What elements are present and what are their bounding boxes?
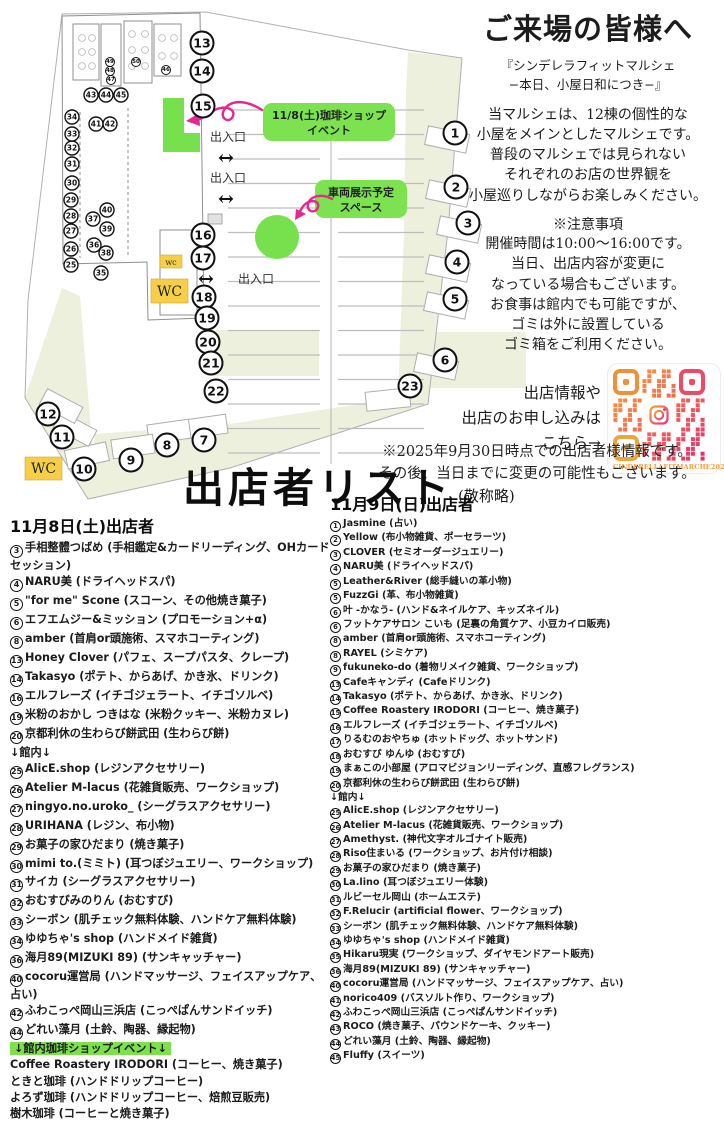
vendor-label: NARU美 (ドライヘッドスパ) — [25, 575, 176, 588]
map-marker-number: 37 — [88, 215, 98, 224]
vendor-label: 米粉のおかし つきはな (米粉クッキー、米粉カヌレ) — [25, 708, 289, 721]
map-marker-number: 10 — [75, 462, 93, 477]
event-subtitle: 『シンデレラフィットマルシェ −本日、小屋日和につき−』 — [456, 57, 720, 95]
vendor-number-badge: 25 — [330, 808, 341, 819]
vendor-number-badge: 26 — [10, 785, 23, 798]
vendor-number-badge: 14 — [10, 674, 23, 687]
map-marker-number: 26 — [66, 245, 76, 254]
vendor-label: どれい藻月 (土鈴、陶器、縁起物) — [343, 1036, 491, 1047]
vendor-label: amber (首肩or頭施術、スマホコーティング) — [343, 633, 546, 644]
vendor-entry: ↓館内↓ — [330, 792, 722, 805]
vendor-label: fukuneko-do (着物リメイク雑貨、ワークショップ) — [343, 662, 578, 673]
vendor-number-badge: 33 — [330, 923, 341, 934]
map-marker-number: 16 — [194, 228, 212, 243]
vendor-entry: 15Coffee Roastery IRODORI (コーヒー、焼き菓子) — [330, 705, 722, 719]
map-marker-number: 13 — [193, 36, 210, 51]
vendor-label: URIHANA (レジン、布小物) — [25, 819, 175, 832]
vendor-number-badge: 35 — [330, 952, 341, 963]
vendor-number-badge: 44 — [330, 1039, 341, 1050]
vendor-number-badge: 17 — [330, 737, 341, 748]
vendor-number-badge: 4 — [330, 564, 341, 575]
sunday-vendor-list: 1Jasmine (占い)2Yellow (布小物雑貨、ポーセラーツ)3CLOV… — [330, 518, 722, 1064]
vendor-number-badge: 42 — [10, 1008, 23, 1021]
vendor-number-badge: 40 — [330, 981, 341, 992]
map-marker-number: 14 — [193, 64, 211, 79]
map-marker-number: 41 — [91, 120, 101, 129]
vendor-label: norico409 (バスソルト作り、ワークショップ) — [343, 993, 554, 1004]
vendor-number-badge: 15 — [330, 708, 341, 719]
double-arrow-icon: ↔ — [218, 147, 234, 169]
trash-box — [208, 214, 222, 224]
map-marker-number: 46 — [162, 67, 170, 73]
vendor-label: Atelier M-lacus (花雑貨販売、ワークショップ) — [25, 781, 279, 794]
vendor-entry: 30La.lino (耳つぼジュエリー体験) — [330, 877, 722, 891]
vendor-number-badge: 28 — [10, 823, 23, 836]
map-marker-number: 36 — [89, 241, 99, 250]
vendor-label: ningyo.no.uroko_ (シーグラスアクセサリー) — [25, 800, 270, 813]
map-marker-number: 47 — [107, 77, 115, 83]
vendor-label: Riso住まいる (ワークショップ、お片付け相談) — [343, 848, 553, 859]
vendor-entry: 28Riso住まいる (ワークショップ、お片付け相談) — [330, 848, 722, 862]
vendor-label: cocoru運営局 (ハンドマッサージ、フェイスアップケア、占い) — [343, 978, 623, 989]
vendor-number-badge: 32 — [10, 898, 23, 911]
vendor-label: ROCO (焼き菓子、パウンドケーキ、クッキー) — [343, 1021, 551, 1032]
vendor-entry: 34ゆゆちゃ's shop (ハンドメイド雑貨) — [10, 931, 330, 949]
vendor-label: Coffee Roastery IRODORI (コーヒー、焼き菓子) — [343, 705, 579, 716]
vendor-entry: 8RAYEL (シミケア) — [330, 648, 722, 662]
vendor-number-badge: 29 — [330, 866, 341, 877]
vendor-label: ↓館内珈琲ショップイベント↓ — [10, 1042, 171, 1055]
vendor-label: Coffee Roastery IRODORI (コーヒー、焼き菓子) — [10, 1058, 283, 1071]
vendor-entry: 40cocoru運営局 (ハンドマッサージ、フェイスアップケア、占い) — [330, 978, 722, 992]
vendor-label: お菓子の家ひだまり (焼き菓子) — [25, 838, 184, 851]
vendor-label: Honey Clover (パフェ、スープパスタ、クレープ) — [25, 651, 289, 664]
wc-label: WC — [31, 461, 56, 477]
vendor-entry: 13Cafeキャンディ (Cafeドリンク) — [330, 677, 722, 691]
vendor-entry: 42ふわこっぺ岡山三浜店 (こっぺぱんサンドイッチ) — [10, 1003, 330, 1021]
map-marker-number: 12 — [39, 407, 56, 422]
vendor-number-badge: 36 — [10, 955, 23, 968]
vendor-number-badge: 18 — [330, 752, 341, 763]
entrance-label: 出入口 — [238, 272, 274, 286]
vendor-entry: 30mimi to.(ミミト) (耳つぼジュエリー、ワークショップ) — [10, 856, 330, 874]
vendor-entry: よろず珈琲 (ハンドドリップコーヒー、焙煎豆販売) — [10, 1090, 330, 1105]
vendor-number-badge: 8 — [330, 636, 341, 647]
vendor-label: RAYEL (シミケア) — [343, 648, 428, 659]
vendor-label: "for me" Scone (スコーン、その他焼き菓子) — [25, 594, 267, 607]
wc-small-label: wc — [165, 258, 177, 267]
map-marker-number: 48 — [106, 68, 114, 74]
vendor-label: りるむのおやちゅ (ホットドッグ、ホットサンド) — [343, 734, 558, 745]
vendor-number-badge: 6 — [10, 617, 23, 630]
vendor-label: Takasyo (ポテト、からあげ、かき氷、ドリンク) — [25, 670, 279, 683]
vendor-entry: 35Hikaru現実 (ワークショップ、ダイヤモンドアート販売) — [330, 949, 722, 963]
vehicle-annotation-line2: スペース — [340, 201, 383, 214]
vendor-number-badge: 31 — [10, 879, 23, 892]
vendor-number-badge: 31 — [330, 895, 341, 906]
entrance-label: 出入口 — [210, 171, 246, 185]
vendor-label: AlicE.shop (レジンアクセサリー) — [343, 805, 499, 816]
vendor-entry: 33シーボン (肌チェック無料体験、ハンドケア無料体験) — [330, 921, 722, 935]
vendor-label: エルフレーズ (イチゴジェラート、イチゴソルベ) — [25, 689, 273, 702]
map-marker-number: 50 — [132, 59, 140, 65]
vendor-label: ↓館内↓ — [330, 792, 366, 803]
vendor-number-badge: 32 — [330, 909, 341, 920]
map-marker-number: 6 — [441, 353, 450, 368]
vendor-entry: 6叶 -かなう- (ハンド&ネイルケア、キッズネイル) — [330, 605, 722, 619]
vendor-number-badge: 16 — [10, 693, 23, 706]
vendor-label: F.Relucir (artificial flower、ワークショップ) — [343, 906, 563, 917]
vendor-label: Takasyo (ポテト、からあげ、かき氷、ドリンク) — [343, 691, 563, 702]
vendor-label: エフエムジー&ミッション (プロモーション+α) — [25, 613, 267, 626]
vendor-entry: ときと珈琲 (ハンドドリップコーヒー) — [10, 1074, 330, 1089]
vendor-label: 海月89(MIZUKI 89) (サンキャッチャー) — [343, 964, 530, 975]
wc-label: WC — [157, 284, 182, 300]
vendor-entry: 14Takasyo (ポテト、からあげ、かき氷、ドリンク) — [330, 691, 722, 705]
vehicle-annotation-line1: 車両展示予定 — [328, 185, 394, 199]
visitor-info-panel: ご来場の皆様へ 『シンデレラフィットマルシェ −本日、小屋日和につき−』 当マル… — [456, 6, 720, 473]
vendor-label: フットケアサロン こいも (足裏の角質ケア、小豆カイロ販売) — [343, 619, 610, 630]
double-arrow-icon: ↔ — [218, 188, 234, 210]
page-title: ご来場の皆様へ — [456, 6, 720, 48]
map-marker-number: 40 — [102, 206, 112, 215]
map-marker-number: 27 — [66, 227, 76, 236]
vendor-number-badge: 20 — [10, 731, 23, 744]
sunday-header: 11月9日(日)出店者 — [330, 491, 722, 515]
vendor-entry: 40cocoru運営局 (ハンドマッサージ、フェイスアップケア、占い) — [10, 969, 330, 1002]
vendor-entry: 25AlicE.shop (レジンアクセサリー) — [330, 805, 722, 819]
vendor-entry: 32F.Relucir (artificial flower、ワークショップ) — [330, 906, 722, 920]
vendor-entry: 20京都利休の生わらび餅武田 (生わらび餅) — [10, 726, 330, 744]
vendor-label: サイカ (シーグラスアクセサリー) — [25, 875, 196, 888]
map-marker-number: 17 — [194, 251, 211, 266]
intro-paragraph: 当マルシェは、12棟の個性的な 小屋をメインとしたマルシェです。 普段のマルシェ… — [456, 105, 720, 206]
vendor-number-badge: 28 — [330, 851, 341, 862]
vendor-label: CLOVER (セミオーダージュエリー) — [343, 547, 503, 558]
vendor-label: ゆゆちゃ's shop (ハンドメイド雑貨) — [343, 935, 510, 946]
vendor-label: ゆゆちゃ's shop (ハンドメイド雑貨) — [25, 932, 218, 945]
saturday-vendor-list: 3手相整體つばめ (手相鑑定&カードリーディング、OHカードセッション)4NAR… — [10, 540, 330, 1121]
vendor-number-badge: 13 — [330, 680, 341, 691]
vendor-entry: 19米粉のおかし つきはな (米粉クッキー、米粉カヌレ) — [10, 707, 330, 725]
vendor-entry: 45Fluffy (スイーツ) — [330, 1050, 722, 1064]
vendor-number-badge: 1 — [330, 521, 341, 532]
vendor-label: 京都利休の生わらび餅武田 (生わらび餅) — [343, 778, 520, 789]
vendor-number-badge: 27 — [330, 837, 341, 848]
vendor-entry: 4NARU美 (ドライヘッドスパ) — [10, 574, 330, 592]
vendor-number-badge: 8 — [10, 636, 23, 649]
vendor-entry: 36海月89(MIZUKI 89) (サンキャッチャー) — [330, 964, 722, 978]
vendor-label: mimi to.(ミミト) (耳つぼジュエリー、ワークショップ) — [25, 857, 313, 870]
vendor-entry: 8amber (首肩or頭施術、スマホコーティング) — [330, 633, 722, 647]
vendor-number-badge: 6 — [330, 607, 341, 618]
vendor-number-badge: 20 — [330, 781, 341, 792]
map-marker-number: 20 — [199, 335, 217, 350]
vendor-number-badge: 33 — [10, 917, 23, 930]
vendor-entry: 3手相整體つばめ (手相鑑定&カードリーディング、OHカードセッション) — [10, 540, 330, 573]
vendor-entry: 42ふわこっぺ岡山三浜店 (こっぺぱんサンドイッチ) — [330, 1007, 722, 1021]
vendor-entry: ↓館内↓ — [10, 745, 330, 760]
vendor-number-badge: 2 — [330, 535, 341, 546]
vendor-entry: 14Takasyo (ポテト、からあげ、かき氷、ドリンク) — [10, 669, 330, 687]
vendor-number-badge: 36 — [330, 967, 341, 978]
vendor-entry: 5"for me" Scone (スコーン、その他焼き菓子) — [10, 593, 330, 611]
vendor-number-badge: 6 — [330, 622, 341, 633]
vendor-entry: 28URIHANA (レジン、布小物) — [10, 818, 330, 836]
map-marker-number: 31 — [67, 160, 77, 169]
vehicle-space-circle — [255, 215, 299, 259]
vendor-entry: 34ゆゆちゃ's shop (ハンドメイド雑貨) — [330, 935, 722, 949]
vendor-entry: 17りるむのおやちゅ (ホットドッグ、ホットサンド) — [330, 734, 722, 748]
vendor-entry: 27Amethyst. (神代文字オルゴナイト販売) — [330, 834, 722, 848]
vendor-entry: 29お菓子の家ひだまり (焼き菓子) — [330, 863, 722, 877]
vendor-number-badge: 42 — [330, 1010, 341, 1021]
vendor-number-badge: 13 — [10, 655, 23, 668]
vendor-number-badge: 43 — [330, 1024, 341, 1035]
vendor-label: amber (首肩or頭施術、スマホコーティング) — [25, 632, 259, 645]
vendor-label: Fluffy (スイーツ) — [343, 1050, 425, 1061]
vendor-entry: 4NARU美 (ドライヘッドスパ) — [330, 561, 722, 575]
map-marker-number: 45 — [116, 91, 126, 100]
vendor-entry: 6エフエムジー&ミッション (プロモーション+α) — [10, 612, 330, 630]
vendor-label: エルフレーズ (イチゴジェラート、イチゴソルベ) — [343, 720, 558, 731]
vendor-label: シーボン (肌チェック無料体験、ハンドケア無料体験) — [343, 921, 578, 932]
map-marker-number: 49 — [106, 59, 114, 65]
vendor-entry: 31ルビーセル岡山 (ホームエステ) — [330, 892, 722, 906]
map-marker-number: 35 — [96, 269, 106, 278]
vendor-entry: 13Honey Clover (パフェ、スープパスタ、クレープ) — [10, 650, 330, 668]
vendor-label: Hikaru現実 (ワークショップ、ダイヤモンドアート販売) — [343, 949, 594, 960]
vendor-entry: 44どれい藻月 (土鈴、陶器、縁起物) — [10, 1022, 330, 1040]
vendor-entry: 16エルフレーズ (イチゴジェラート、イチゴソルベ) — [10, 688, 330, 706]
coffee-event-annotation-line1: 11/8(土)珈琲ショップ — [272, 108, 387, 122]
map-marker-number: 42 — [105, 120, 115, 129]
vendor-number-badge: 29 — [10, 842, 23, 855]
map-marker-number: 18 — [195, 290, 212, 305]
vendor-number-badge: 19 — [330, 766, 341, 777]
vendor-entry: Coffee Roastery IRODORI (コーヒー、焼き菓子) — [10, 1057, 330, 1072]
map-marker-number: 21 — [202, 356, 219, 371]
vendor-entry: 36海月89(MIZUKI 89) (サンキャッチャー) — [10, 950, 330, 968]
map-marker-number: 44 — [101, 91, 111, 100]
vendor-entry: 8amber (首肩or頭施術、スマホコーティング) — [10, 631, 330, 649]
vendor-label: おむすびみのりん (おむすび) — [25, 894, 173, 907]
map-marker-number: 28 — [66, 212, 76, 221]
map-marker-number: 15 — [194, 99, 211, 114]
notice-paragraph: 開催時間は10:00〜16:00です。 当日、出店内容が変更に なっている場合も… — [456, 234, 720, 356]
vendor-entry: 9fukuneko-do (着物リメイク雑貨、ワークショップ) — [330, 662, 722, 676]
vendor-entry: 27ningyo.no.uroko_ (シーグラスアクセサリー) — [10, 799, 330, 817]
vendor-entry: 樹木珈琲 (コーヒーと焼き菓子) — [10, 1106, 330, 1121]
vendor-entry: 32おむすびみのりん (おむすび) — [10, 893, 330, 911]
vendor-number-badge: 27 — [10, 804, 23, 817]
vendor-label: ときと珈琲 (ハンドドリップコーヒー) — [10, 1075, 203, 1088]
vendor-label: ふわこっぺ岡山三浜店 (こっぺぱんサンドイッチ) — [343, 1007, 557, 1018]
vendor-entry: 20京都利休の生わらび餅武田 (生わらび餅) — [330, 778, 722, 792]
vendor-entry: 18おむすび ゆんゆ (おむすび) — [330, 749, 722, 763]
map-marker-number: 7 — [200, 433, 209, 448]
vendor-label: おむすび ゆんゆ (おむすび) — [343, 749, 465, 760]
vendor-entry: 5Leather&River (総手縫いの革小物) — [330, 576, 722, 590]
vendor-entry: 3CLOVER (セミオーダージュエリー) — [330, 547, 722, 561]
vendor-label: cocoru運営局 (ハンドマッサージ、フェイスアップケア、占い) — [10, 970, 321, 1001]
vendor-label: ↓館内↓ — [10, 746, 51, 759]
vendor-entry: 5FuzzGi (革、布小物雑貨) — [330, 590, 722, 604]
saturday-vendor-column: 11月8日(土)出店者 3手相整體つばめ (手相鑑定&カードリーディング、OHカ… — [10, 513, 330, 1122]
vendor-entry: 33シーボン (肌チェック無料体験、ハンドケア無料体験) — [10, 912, 330, 930]
vendor-label: シーボン (肌チェック無料体験、ハンドケア無料体験) — [25, 913, 296, 926]
map-marker-number: 11 — [53, 430, 70, 445]
vendor-number-badge: 26 — [330, 822, 341, 833]
vendor-number-badge: 9 — [330, 665, 341, 676]
vendor-label: 京都利休の生わらび餅武田 (生わらび餅) — [25, 727, 229, 740]
notice-title: ※注意事項 — [456, 214, 720, 234]
map-marker-number: 34 — [67, 113, 77, 122]
vendor-label: Amethyst. (神代文字オルゴナイト販売) — [343, 834, 527, 845]
coffee-event-annotation-line2: イベント — [307, 124, 351, 137]
vendor-entry: 44どれい藻月 (土鈴、陶器、縁起物) — [330, 1036, 722, 1050]
vendor-label: 手相整體つばめ (手相鑑定&カードリーディング、OHカードセッション) — [10, 541, 330, 572]
vendor-label: どれい藻月 (土鈴、陶器、縁起物) — [25, 1023, 196, 1036]
vendor-entry: 25AlicE.shop (レジンアクセサリー) — [10, 761, 330, 779]
vendor-label: ふわこっぺ岡山三浜店 (こっぺぱんサンドイッチ) — [25, 1004, 273, 1017]
vendor-entry: 41norico409 (バスソルト作り、ワークショップ) — [330, 993, 722, 1007]
vendor-label: AlicE.shop (レジンアクセサリー) — [25, 762, 205, 775]
qr-logo-plate — [644, 400, 674, 430]
vendor-label: お菓子の家ひだまり (焼き菓子) — [343, 863, 481, 874]
vendor-label: 叶 -かなう- (ハンド&ネイルケア、キッズネイル) — [343, 605, 559, 616]
vendor-number-badge: 3 — [10, 545, 23, 558]
map-marker-number: 23 — [401, 379, 418, 394]
vendor-number-badge: 3 — [330, 550, 341, 561]
vendor-entry: 6フットケアサロン こいも (足裏の角質ケア、小豆カイロ販売) — [330, 619, 722, 633]
vendor-number-badge: 40 — [10, 974, 23, 987]
map-marker-number: 9 — [127, 453, 136, 468]
vendor-number-badge: 19 — [10, 712, 23, 725]
map-marker-number: 30 — [67, 179, 77, 188]
vendor-number-badge: 30 — [330, 880, 341, 891]
vendor-label: ルビーセル岡山 (ホームエステ) — [343, 892, 481, 903]
vendor-entry: 2Yellow (布小物雑貨、ポーセラーツ) — [330, 532, 722, 546]
vendor-label: 海月89(MIZUKI 89) (サンキャッチャー) — [25, 951, 241, 964]
map-marker-number: 43 — [86, 91, 96, 100]
vendor-entry: 19まぁこの小部屋 (アロマビジョンリーディング、直感フレグランス) — [330, 763, 722, 777]
vendor-label: Leather&River (総手縫いの革小物) — [343, 576, 512, 587]
map-marker-number: 32 — [67, 144, 77, 153]
vendor-number-badge: 44 — [10, 1027, 23, 1040]
vendor-label: FuzzGi (革、布小物雑貨) — [343, 590, 459, 601]
vendor-number-badge: 25 — [10, 766, 23, 779]
map-marker-number: 39 — [102, 225, 112, 234]
vendor-entry: 29お菓子の家ひだまり (焼き菓子) — [10, 837, 330, 855]
map-marker-number: 33 — [67, 130, 77, 139]
sunday-vendor-column: 11月9日(日)出店者 1Jasmine (占い)2Yellow (布小物雑貨、… — [330, 491, 722, 1065]
vendor-entry: 26Atelier M-lacus (花雑貨販売、ワークショップ) — [10, 780, 330, 798]
vendor-label: よろず珈琲 (ハンドドリップコーヒー、焙煎豆販売) — [10, 1091, 270, 1104]
map-marker-number: 25 — [66, 261, 76, 270]
vendor-number-badge: 14 — [330, 694, 341, 705]
map-marker-number: 22 — [207, 384, 224, 399]
vendor-entry: 16エルフレーズ (イチゴジェラート、イチゴソルベ) — [330, 720, 722, 734]
map-marker-number: 29 — [66, 196, 76, 205]
vendor-label: NARU美 (ドライヘッドスパ) — [343, 561, 473, 572]
vendor-number-badge: 45 — [330, 1053, 341, 1064]
vendor-entry: 1Jasmine (占い) — [330, 518, 722, 532]
vendor-number-badge: 34 — [10, 936, 23, 949]
vendor-label: Yellow (布小物雑貨、ポーセラーツ) — [343, 532, 506, 543]
map-marker-number: 8 — [163, 438, 172, 453]
vendor-number-badge: 8 — [330, 651, 341, 662]
vendor-number-badge: 34 — [330, 938, 341, 949]
vendor-number-badge: 5 — [10, 598, 23, 611]
vendor-number-badge: 16 — [330, 723, 341, 734]
entrance-label: 出入口 — [210, 130, 246, 144]
vendor-entry: 31サイカ (シーグラスアクセサリー) — [10, 874, 330, 892]
vendor-label: 樹木珈琲 (コーヒーと焼き菓子) — [10, 1107, 170, 1120]
vendor-entry: 26Atelier M-lacus (花雑貨販売、ワークショップ) — [330, 820, 722, 834]
map-marker-number: 38 — [101, 249, 111, 258]
vendor-number-badge: 5 — [330, 579, 341, 590]
vendor-label: Jasmine (占い) — [343, 518, 417, 529]
vendor-entry: ↓館内珈琲ショップイベント↓ — [10, 1041, 330, 1056]
map-marker-number: 19 — [198, 311, 215, 326]
vendor-label: まぁこの小部屋 (アロマビジョンリーディング、直感フレグランス) — [343, 763, 635, 774]
vendor-label: Cafeキャンディ (Cafeドリンク) — [343, 677, 491, 688]
vendor-number-badge: 30 — [10, 860, 23, 873]
vendor-label: Atelier M-lacus (花雑貨販売、ワークショップ) — [343, 820, 563, 831]
vendor-number-badge: 4 — [10, 579, 23, 592]
saturday-header: 11月8日(土)出店者 — [10, 513, 330, 537]
vendor-label: La.lino (耳つぼジュエリー体験) — [343, 877, 488, 888]
vendor-number-badge: 5 — [330, 593, 341, 604]
vendor-number-badge: 41 — [330, 996, 341, 1007]
